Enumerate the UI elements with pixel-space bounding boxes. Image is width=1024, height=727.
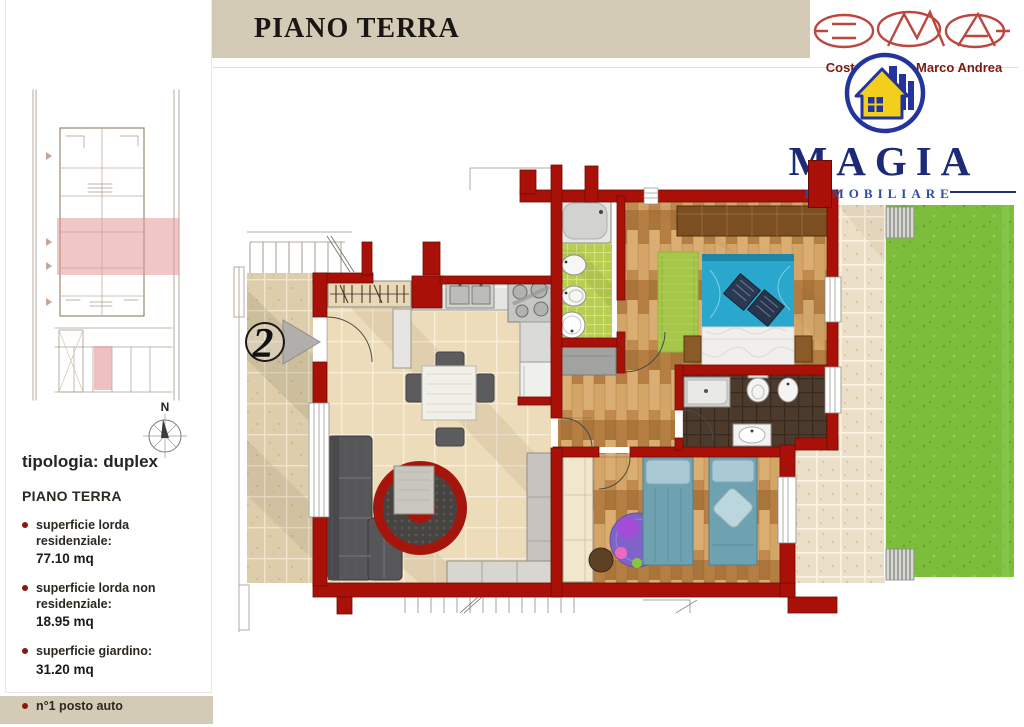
site-plan-unit-highlight [57, 218, 179, 275]
feature-label: superficie lorda residenziale: [36, 518, 202, 549]
bullet-icon [22, 522, 28, 528]
kitchen-fridge [520, 362, 553, 400]
unit-info-panel: tipologia: duplex PIANO TERRA superficie… [20, 452, 202, 727]
brand-name: MAGIA [768, 137, 1000, 185]
brand-underline [950, 191, 1016, 193]
single-bed-right [709, 457, 757, 565]
single-bed-left [643, 457, 693, 565]
window-bathroom2 [825, 367, 841, 413]
garden-steps-top [886, 207, 914, 238]
round-rug [373, 461, 467, 555]
brand-subtitle: IMMOBILIARE [772, 186, 986, 202]
garden-steps-bottom [886, 549, 914, 580]
closet [563, 455, 593, 582]
toilet2 [747, 378, 769, 402]
unit-badge-number: 2 [252, 321, 274, 367]
agency-house-logo-icon [842, 50, 928, 136]
feature-garden: superficie giardino: 31.20 mq [20, 644, 202, 679]
sidebar-floor-label: PIANO TERRA [22, 488, 202, 504]
garden-lawn [885, 205, 1014, 577]
feature-label: n°1 posto auto [36, 699, 202, 715]
feature-label: superficie giardino: [36, 644, 202, 660]
typology-label: tipologia: duplex [22, 452, 202, 472]
bullet-icon [22, 585, 28, 591]
feature-residential: superficie lorda residenziale: 77.10 mq [20, 518, 202, 568]
kitchen-counter-side [520, 322, 553, 362]
toilet [562, 286, 586, 306]
window-bedroom1 [825, 277, 841, 322]
bullet-icon [22, 703, 28, 709]
site-plan-parking-highlight [94, 346, 112, 390]
feature-value: 31.20 mq [36, 662, 202, 679]
bed-headboard [702, 254, 794, 261]
feature-non-residential: superficie lorda non residenziale: 18.95… [20, 581, 202, 631]
compass-icon: N [143, 400, 187, 458]
pouf [589, 548, 613, 572]
main-floor-plan: 2 [234, 165, 1024, 632]
window-top [644, 188, 658, 204]
bedroom2-furniture [563, 455, 757, 582]
wall-pier [808, 160, 832, 208]
feature-value: 77.10 mq [36, 551, 202, 568]
nightstand-left [684, 336, 701, 362]
corridor-cabinet [560, 347, 616, 375]
bidet2 [778, 378, 798, 402]
window-bedroom2 [778, 477, 796, 543]
compass-north-label: N [161, 400, 170, 414]
window-terrace [309, 403, 329, 517]
nightstand-right [795, 336, 812, 362]
site-plan [33, 90, 179, 400]
bidet [562, 255, 586, 275]
pocket-door-panel [393, 309, 411, 368]
feature-value: 18.95 mq [36, 614, 202, 631]
feature-label: superficie lorda non residenziale: [36, 581, 202, 612]
bullet-icon [22, 648, 28, 654]
feature-parking: n°1 posto auto [20, 699, 202, 715]
